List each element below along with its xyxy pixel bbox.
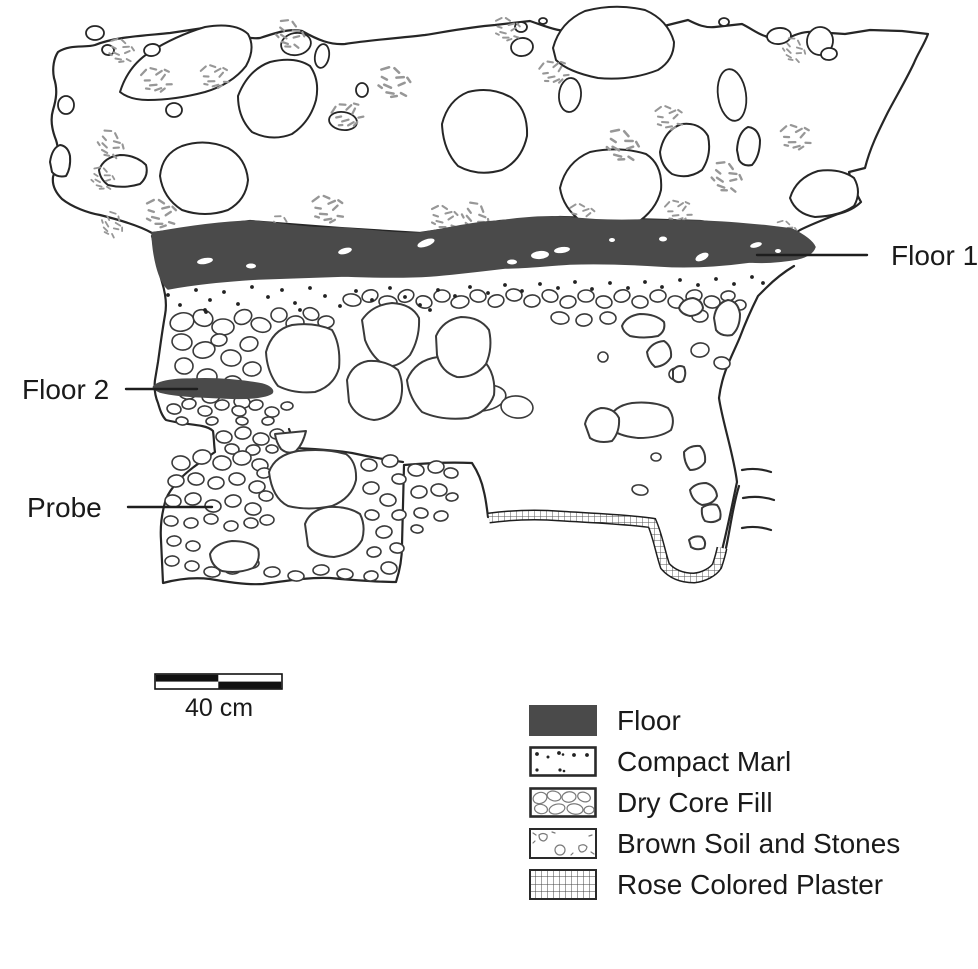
stone: [631, 484, 648, 497]
marl-dot: [468, 285, 472, 289]
stone: [244, 518, 259, 529]
stone: [651, 453, 661, 461]
stone: [342, 293, 362, 308]
stone: [271, 308, 287, 322]
stone: [713, 356, 731, 370]
stone: [379, 493, 396, 507]
stone: [184, 492, 201, 506]
marl-dot: [436, 288, 440, 292]
figure-page: Floor 1 Floor 2 Probe 40 cm Floor: [0, 0, 978, 969]
stone: [407, 463, 424, 477]
marl-dot: [370, 298, 374, 302]
stone: [600, 311, 617, 324]
stone: [243, 361, 262, 376]
marl-dot: [194, 288, 198, 292]
stone: [265, 407, 280, 418]
stone: [375, 525, 392, 539]
stone: [246, 264, 256, 269]
stone: [224, 494, 241, 508]
stone: [250, 316, 273, 335]
marl-dot: [298, 308, 302, 312]
stone: [281, 402, 294, 411]
stone: [550, 311, 569, 325]
scale-bar: 40 cm: [155, 674, 282, 722]
stone: [365, 509, 380, 520]
marl-dot: [403, 295, 407, 299]
marl-dot: [590, 287, 594, 291]
marl-dot: [208, 298, 212, 302]
upper-section-brown-soil: [50, 7, 928, 243]
stone: [719, 18, 729, 26]
stone: [361, 288, 380, 304]
marl-dot: [714, 277, 718, 281]
stone: [609, 238, 615, 242]
stone: [58, 96, 74, 114]
stone: [650, 289, 667, 302]
legend-swatch-dry-core-fill-icon: [529, 787, 597, 818]
stone: [244, 502, 261, 516]
stone: [248, 399, 264, 411]
legend-row-rose-colored-plaster: Rose Colored Plaster: [529, 869, 900, 900]
legend-label-rose-plaster: Rose Colored Plaster: [617, 869, 883, 900]
marl-dot: [178, 303, 182, 307]
stone: [206, 416, 219, 425]
stone: [253, 432, 270, 445]
marl-dot: [338, 304, 342, 308]
stone: [380, 561, 397, 575]
stone: [184, 518, 199, 529]
stone: [539, 18, 547, 24]
marl-dot: [293, 301, 297, 305]
marl-dot: [388, 286, 392, 290]
stone: [690, 342, 710, 358]
marl-dot: [236, 302, 240, 306]
stone: [164, 516, 179, 527]
stone: [524, 294, 541, 307]
marl-dot: [750, 275, 754, 279]
marl-dot: [418, 303, 422, 307]
wall-break-line-1: [742, 469, 771, 472]
wall-break-line-2: [743, 497, 774, 500]
stone: [434, 290, 450, 302]
stone: [775, 249, 781, 253]
stone: [411, 524, 424, 533]
stone: [236, 416, 249, 425]
stone: [187, 472, 204, 486]
stone: [434, 510, 449, 521]
stone: [337, 568, 354, 579]
floor1-label: Floor 1: [891, 240, 978, 271]
stone: [204, 514, 219, 525]
stone: [215, 400, 230, 411]
stone: [260, 515, 275, 526]
marl-dot: [323, 294, 327, 298]
legend-swatch-compact-marl-icon: [529, 746, 597, 777]
stone: [185, 561, 200, 572]
stone: [559, 295, 577, 310]
marl-dot: [556, 286, 560, 290]
stone: [362, 481, 379, 495]
stone: [259, 491, 274, 502]
marl-dot: [696, 283, 700, 287]
stone: [264, 566, 281, 577]
stone: [228, 472, 245, 486]
right-edge-inner-line: [726, 486, 739, 548]
stone: [166, 403, 181, 415]
scale-bar-label: 40 cm: [185, 694, 253, 722]
marl-dot: [643, 280, 647, 284]
stone: [469, 289, 487, 304]
stone: [632, 295, 649, 308]
legend-label-dry-core-fill: Dry Core Fill: [617, 787, 773, 818]
legend-label-floor: Floor: [617, 705, 681, 736]
rose-plaster-band: [489, 515, 722, 578]
stone: [167, 474, 184, 488]
marl-dot: [732, 282, 736, 286]
marl-dot: [250, 285, 254, 289]
stone: [500, 394, 534, 419]
legend-row-brown-soil-and-stones: Brown Soil and Stones: [529, 828, 900, 859]
legend-label-brown-soil: Brown Soil and Stones: [617, 828, 900, 859]
stone: [360, 458, 377, 472]
probe-label: Probe: [27, 492, 102, 523]
marl-dot: [503, 283, 507, 287]
stone: [392, 509, 407, 520]
stone: [578, 290, 594, 302]
stone: [210, 333, 228, 347]
legend-row-dry-core-fill: Dry Core Fill: [529, 787, 900, 818]
marl-dot: [538, 282, 542, 286]
stone: [301, 306, 320, 323]
stone: [234, 426, 252, 440]
floor2-label: Floor 2: [22, 374, 109, 405]
marl-dot: [486, 291, 490, 295]
stone: [164, 494, 181, 508]
stone: [220, 349, 242, 367]
legend-swatch-rose-plaster-icon: [529, 869, 597, 900]
wall-break-line-3: [742, 527, 771, 530]
stone: [207, 476, 224, 490]
marl-dot: [266, 295, 270, 299]
stone: [171, 455, 191, 471]
marl-dot: [354, 289, 358, 293]
stone: [575, 313, 593, 327]
stone: [415, 294, 434, 310]
legend: Floor Compact Marl: [529, 705, 900, 910]
stone: [446, 492, 459, 501]
stone: [171, 332, 193, 351]
stone: [166, 103, 182, 117]
stone: [262, 416, 275, 425]
marl-dot: [308, 286, 312, 290]
stone: [198, 406, 213, 417]
stone: [450, 295, 470, 310]
stone: [595, 295, 613, 310]
stone: [239, 335, 260, 353]
stone: [598, 352, 608, 362]
marl-dot: [678, 278, 682, 282]
stone: [224, 521, 239, 532]
stone: [487, 293, 506, 309]
marl-dot: [280, 288, 284, 292]
marl-dot: [428, 308, 432, 312]
stone: [192, 449, 212, 465]
legend-swatch-floor-icon: [529, 705, 597, 736]
legend-swatch-brown-soil-icon: [529, 828, 597, 859]
stone: [444, 467, 459, 478]
stone: [381, 454, 398, 468]
stone: [506, 288, 523, 301]
stone: [410, 485, 427, 499]
marl-dot: [761, 281, 765, 285]
stone: [430, 483, 447, 497]
stone: [212, 319, 234, 335]
stone: [168, 310, 196, 334]
stone: [613, 288, 632, 304]
stone: [176, 416, 189, 425]
stone: [181, 398, 196, 410]
legend-row-compact-marl: Compact Marl: [529, 746, 900, 777]
marl-dot: [608, 281, 612, 285]
stone: [288, 570, 305, 581]
stone: [659, 237, 667, 242]
stone: [266, 445, 279, 454]
stone: [86, 26, 104, 40]
marl-dot: [520, 289, 524, 293]
stone: [414, 507, 429, 518]
stone: [507, 260, 517, 265]
stone: [364, 570, 379, 581]
stone: [356, 83, 368, 97]
legend-label-compact-marl: Compact Marl: [617, 746, 791, 777]
stone: [167, 536, 182, 547]
marl-dot: [453, 294, 457, 298]
stone: [215, 430, 232, 444]
legend-row-floor: Floor: [529, 705, 900, 736]
stone: [392, 473, 407, 484]
marl-dot: [222, 290, 226, 294]
stone: [233, 450, 252, 465]
stone: [313, 564, 330, 575]
stone: [174, 357, 193, 374]
marl-dot: [626, 286, 630, 290]
marl-dot: [204, 310, 208, 314]
stone: [390, 542, 405, 553]
marl-dot: [660, 285, 664, 289]
marl-dot: [573, 280, 577, 284]
stone: [165, 556, 180, 567]
marl-dot: [166, 293, 170, 297]
stone: [186, 541, 201, 552]
stone: [541, 288, 560, 304]
stone: [820, 47, 837, 61]
stone: [367, 546, 382, 557]
stone: [213, 455, 232, 470]
